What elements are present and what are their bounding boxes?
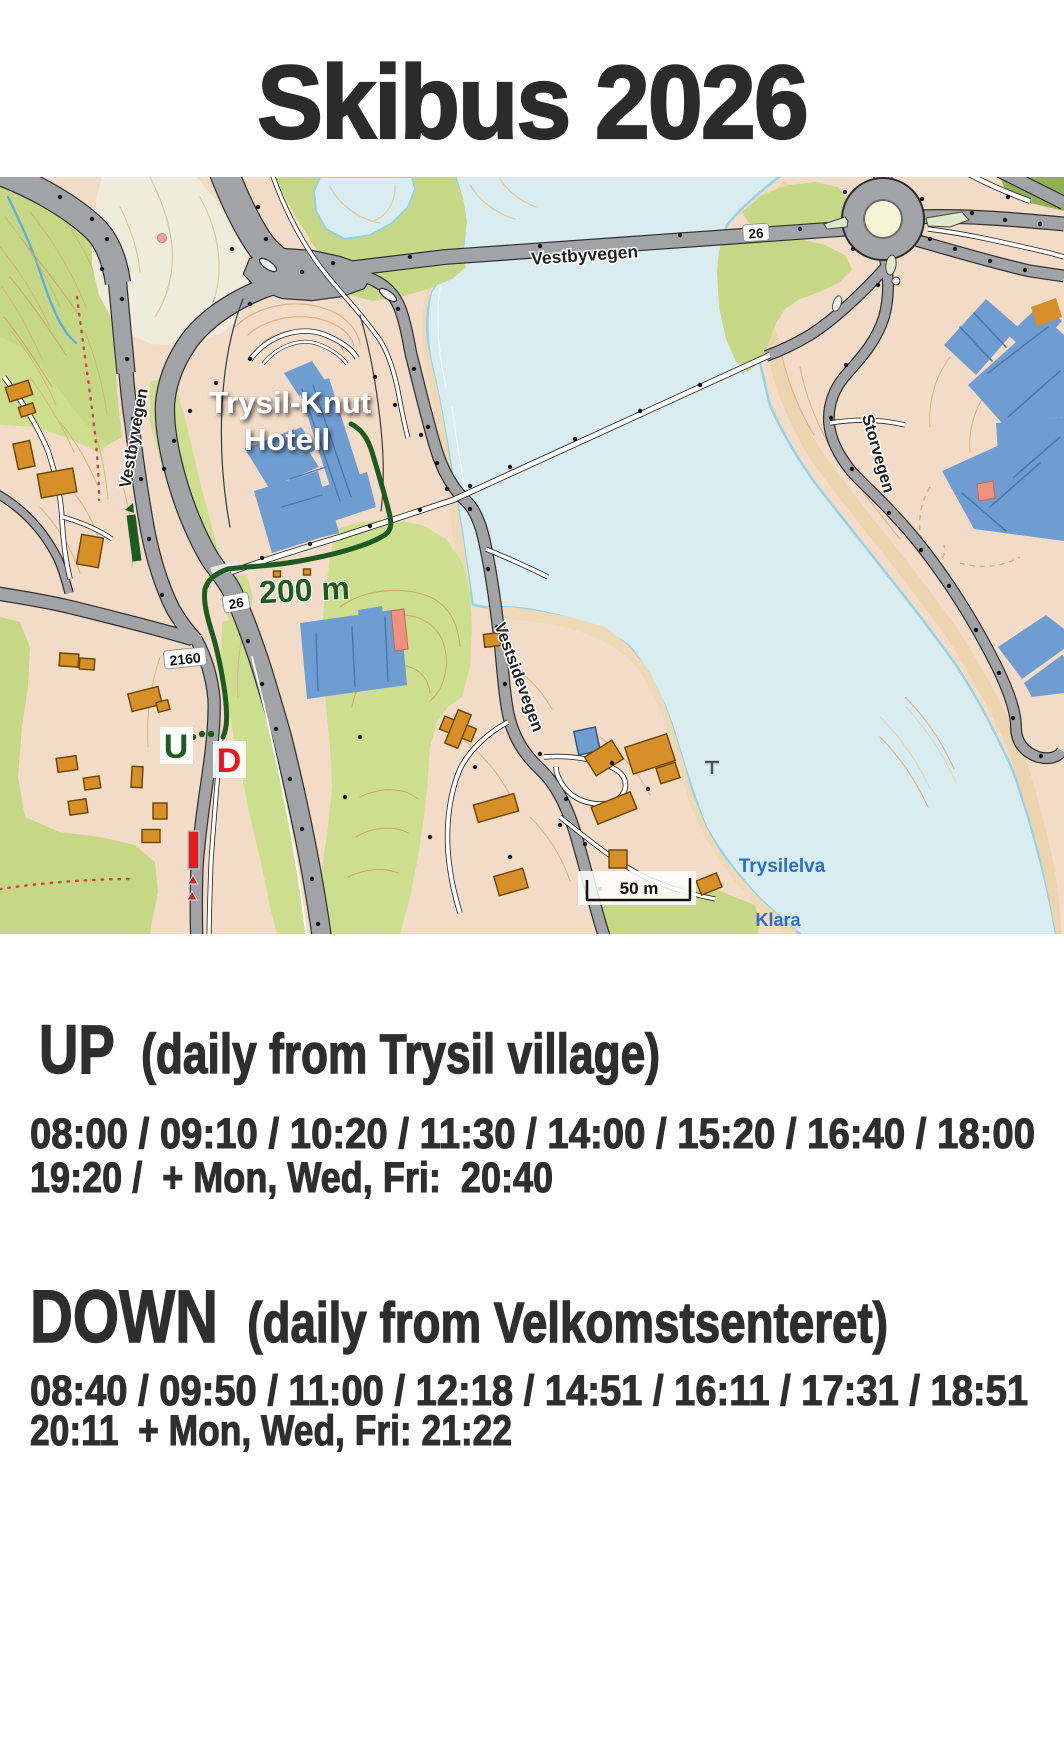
svg-text:U: U (164, 728, 189, 766)
svg-text:200 m: 200 m (258, 570, 350, 611)
svg-text:26: 26 (748, 225, 765, 241)
svg-text:Trysilelva: Trysilelva (739, 856, 826, 877)
svg-text:D: D (217, 742, 242, 780)
svg-text:2160: 2160 (169, 649, 202, 668)
svg-text:26: 26 (228, 595, 246, 612)
svg-text:Trysil-Knut: Trysil-Knut (209, 385, 371, 420)
svg-text:50 m: 50 m (620, 879, 659, 898)
svg-text:Hotell: Hotell (244, 422, 330, 457)
svg-text:Klara: Klara (755, 910, 801, 930)
